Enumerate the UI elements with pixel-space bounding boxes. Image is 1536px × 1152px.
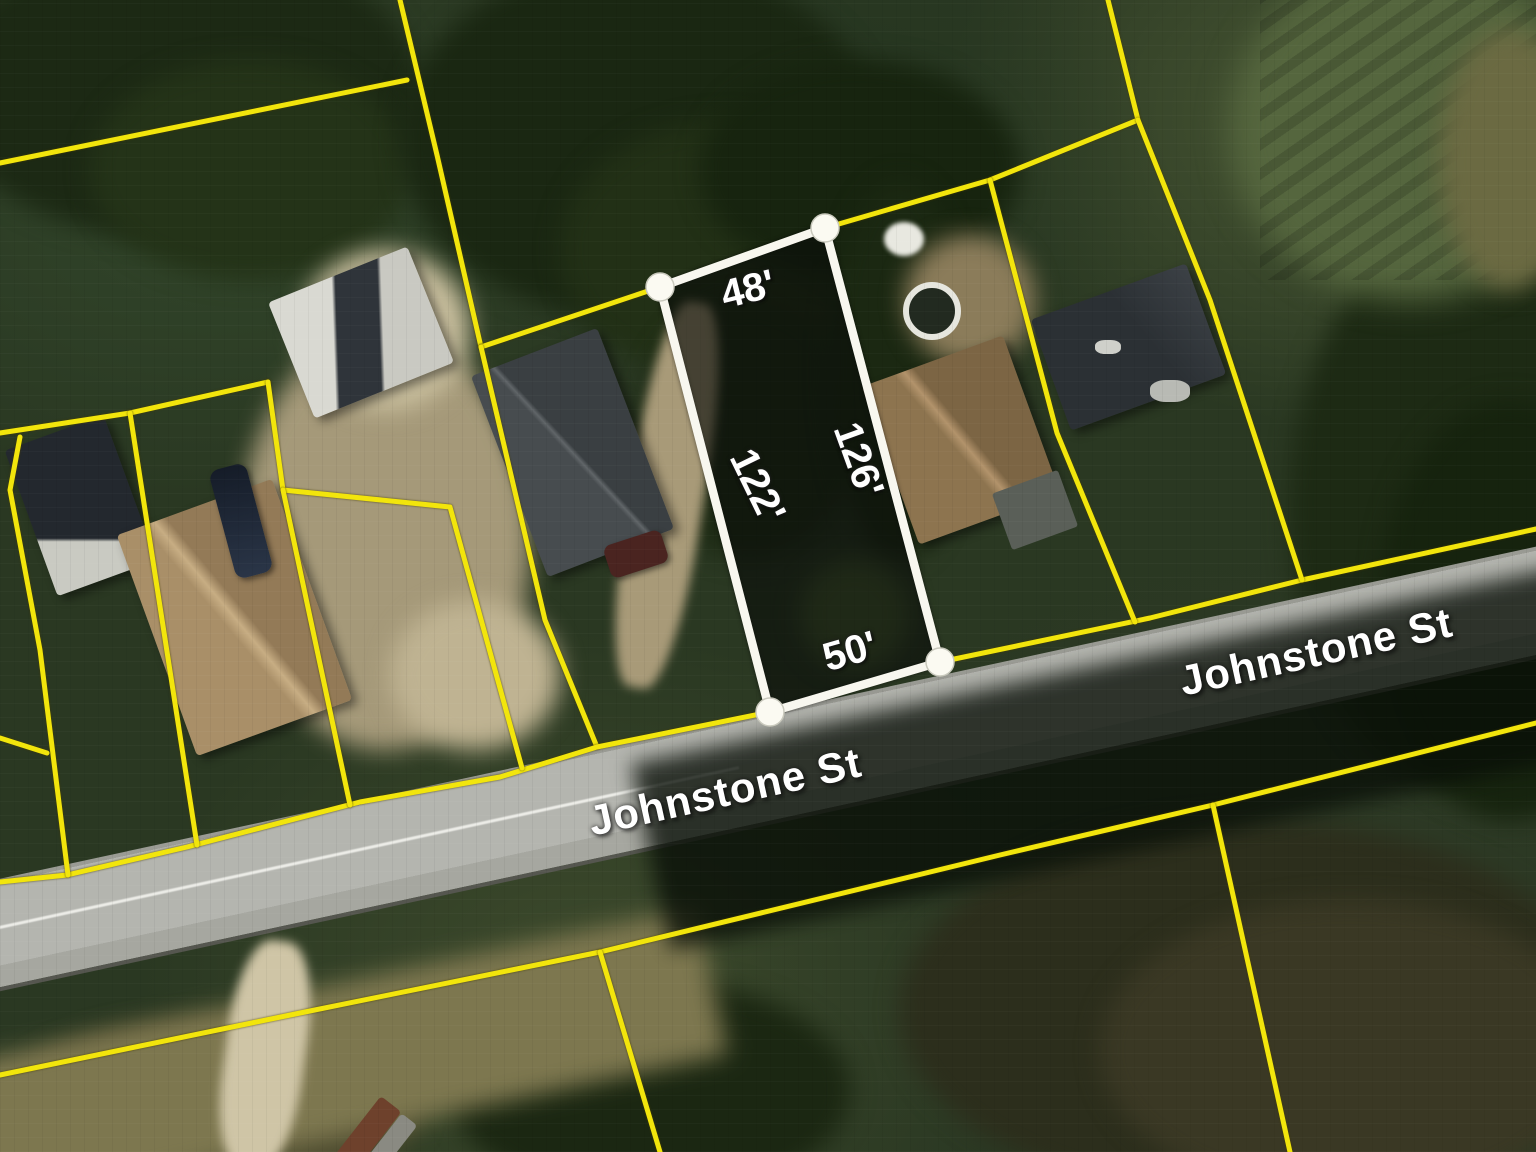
parcel-line <box>990 180 1135 622</box>
parcel-boundary-overlay <box>0 0 1536 1152</box>
vertex-handle[interactable] <box>811 214 839 242</box>
parcel-line <box>0 80 407 163</box>
aerial-parcel-map: 48' 122' 126' 50' Johnstone St Johnstone… <box>0 0 1536 1152</box>
parcel-line <box>130 413 197 845</box>
vertex-handle[interactable] <box>646 273 674 301</box>
parcel-line <box>600 952 660 1152</box>
parcel-line <box>825 0 1138 228</box>
parcel-line <box>400 0 481 347</box>
parcel-line <box>283 490 350 805</box>
highlighted-parcel[interactable] <box>660 228 940 712</box>
parcel-line <box>10 437 68 875</box>
parcel-line <box>1213 805 1290 1152</box>
parcel-line <box>268 382 522 768</box>
vertex-handle[interactable] <box>756 698 784 726</box>
parcel-line <box>0 738 47 753</box>
parcel-line <box>1138 120 1302 580</box>
vertex-handle[interactable] <box>926 648 954 676</box>
parcel-line <box>481 287 660 347</box>
